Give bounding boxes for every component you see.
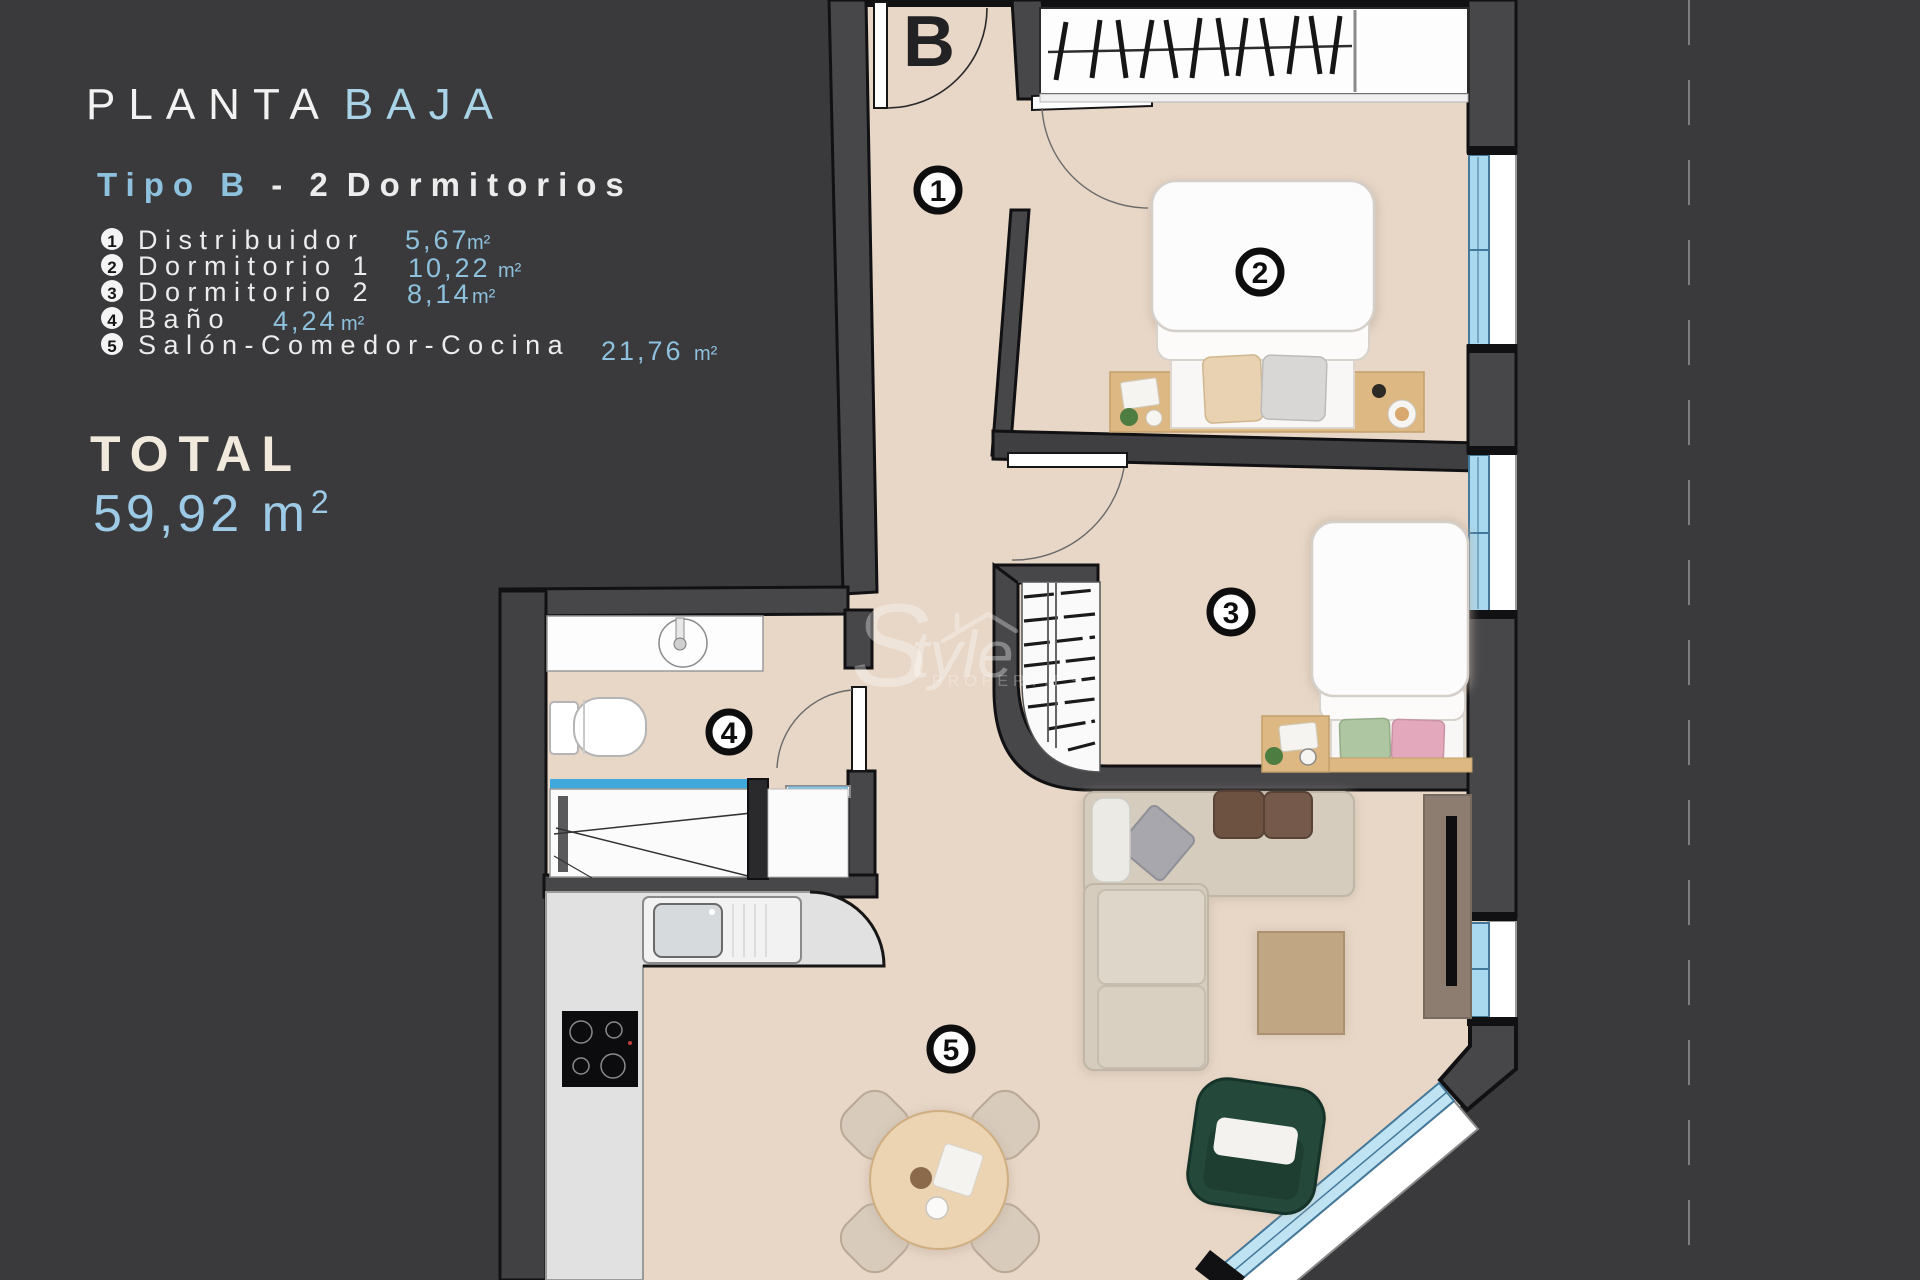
svg-text:B: B — [903, 2, 955, 82]
svg-text:PLANTABAJA: PLANTABAJA — [86, 80, 506, 129]
svg-text:m²: m² — [694, 343, 718, 365]
svg-text:4: 4 — [107, 311, 117, 330]
svg-text:59,92 m2: 59,92 m2 — [93, 484, 333, 543]
svg-text:Salón-Comedor-Cocina: Salón-Comedor-Cocina — [138, 330, 570, 360]
svg-text:1: 1 — [930, 175, 947, 208]
svg-text:TOTAL: TOTAL — [90, 426, 302, 482]
svg-text:5: 5 — [943, 1034, 960, 1067]
svg-text:21,76: 21,76 — [601, 336, 684, 366]
svg-text:2: 2 — [1252, 257, 1269, 290]
svg-text:4: 4 — [721, 717, 738, 750]
svg-text:Tipo B - 2Dormitorios: Tipo B - 2Dormitorios — [97, 166, 633, 203]
svg-text:m²: m² — [467, 232, 491, 254]
svg-text:3: 3 — [107, 284, 116, 303]
svg-text:5: 5 — [107, 337, 116, 356]
svg-text:5,67: 5,67 — [405, 225, 470, 255]
svg-text:2: 2 — [107, 258, 116, 277]
svg-text:8,14: 8,14 — [407, 279, 472, 309]
svg-text:PROPERTIES: PROPERTIES — [932, 673, 1085, 690]
svg-text:m²: m² — [498, 260, 522, 282]
svg-text:3: 3 — [1223, 597, 1240, 630]
svg-text:1: 1 — [107, 232, 116, 251]
svg-text:Dormitorio 2: Dormitorio 2 — [138, 277, 375, 307]
svg-text:m²: m² — [472, 286, 496, 308]
